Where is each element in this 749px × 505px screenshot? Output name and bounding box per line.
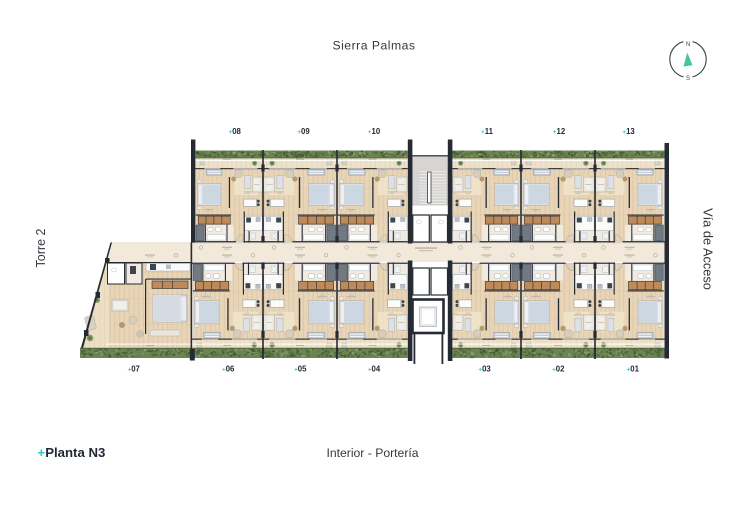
svg-text:+08: +08	[229, 127, 242, 136]
svg-text:Vía de Acceso: Vía de Acceso	[701, 208, 716, 290]
svg-text:+02: +02	[552, 364, 565, 373]
svg-text:+07: +07	[128, 364, 140, 373]
svg-text:+12: +12	[553, 127, 566, 136]
svg-text:Interior - Portería: Interior - Portería	[326, 446, 418, 460]
svg-text:+13: +13	[622, 127, 635, 136]
svg-text:+11: +11	[481, 127, 494, 136]
svg-text:+01: +01	[627, 364, 640, 373]
svg-text:+Planta N3: +Planta N3	[38, 445, 106, 460]
svg-text:N: N	[686, 42, 690, 48]
svg-text:+09: +09	[297, 127, 310, 136]
svg-text:+06: +06	[222, 364, 235, 373]
svg-text:+04: +04	[368, 364, 381, 373]
svg-text:+10: +10	[368, 127, 381, 136]
svg-text:+03: +03	[478, 364, 491, 373]
svg-text:+05: +05	[294, 364, 307, 373]
svg-text:Torre 2: Torre 2	[34, 229, 48, 268]
svg-text:Sierra Palmas: Sierra Palmas	[332, 39, 415, 53]
svg-text:S: S	[686, 76, 690, 82]
